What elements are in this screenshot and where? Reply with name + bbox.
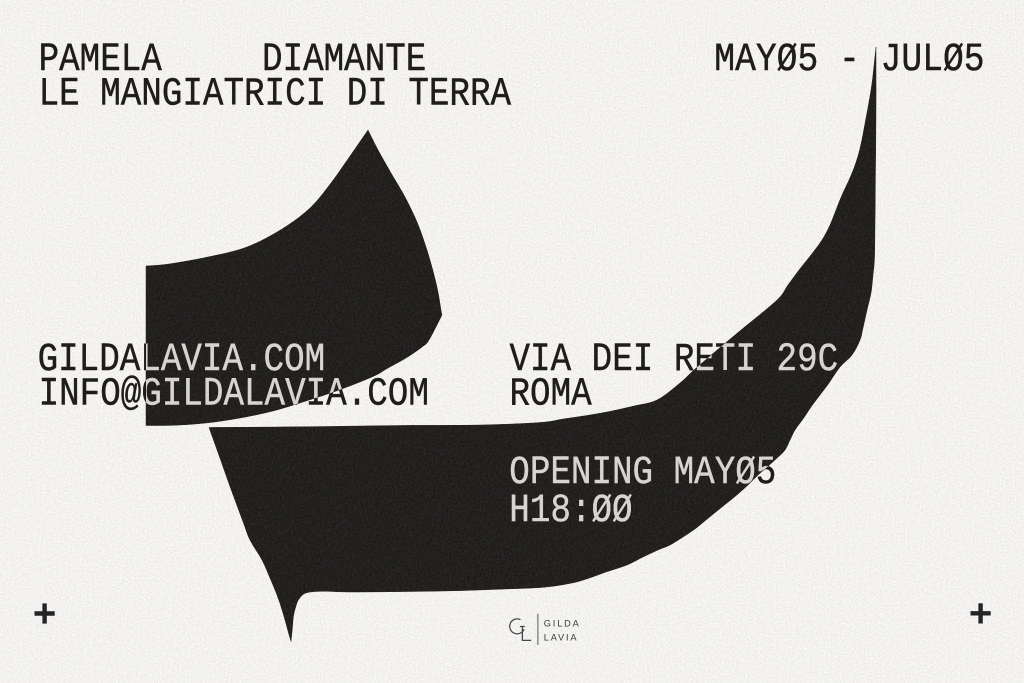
svg-text:ROMA: ROMA [510,372,593,417]
svg-text:GILDA: GILDA [544,618,581,628]
svg-text:LAVIA: LAVIA [544,633,579,643]
svg-text:MAYØ5 - JULØ5: MAYØ5 - JULØ5 [714,38,984,83]
svg-text:H18:ØØ: H18:ØØ [509,489,632,534]
svg-text:LE MANGIATRICI DI TERRA: LE MANGIATRICI DI TERRA [39,72,512,117]
